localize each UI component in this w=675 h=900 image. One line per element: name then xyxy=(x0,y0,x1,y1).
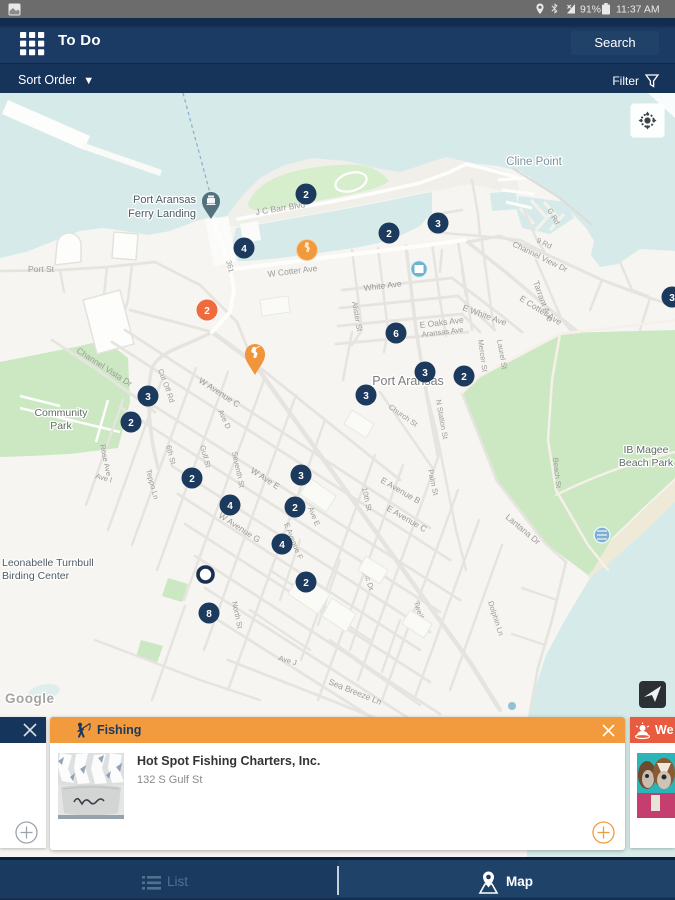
svg-text:IB Magee: IB Magee xyxy=(624,444,669,456)
svg-text:2: 2 xyxy=(292,503,298,514)
svg-text:3: 3 xyxy=(669,293,675,304)
svg-text:3: 3 xyxy=(422,368,428,379)
svg-text:6: 6 xyxy=(393,329,399,340)
svg-text:Port Aransas: Port Aransas xyxy=(133,194,196,206)
svg-text:Park: Park xyxy=(50,420,72,432)
svg-text:2: 2 xyxy=(386,229,392,240)
svg-text:Cline Point: Cline Point xyxy=(506,156,562,168)
svg-text:Ferry Landing: Ferry Landing xyxy=(128,208,196,220)
svg-text:3: 3 xyxy=(363,391,369,402)
svg-text:2: 2 xyxy=(461,372,467,383)
svg-text:4: 4 xyxy=(241,244,247,255)
svg-text:2: 2 xyxy=(189,474,195,485)
svg-text:2: 2 xyxy=(128,418,134,429)
svg-text:2: 2 xyxy=(303,190,309,201)
svg-text:3: 3 xyxy=(298,471,304,482)
svg-text:3: 3 xyxy=(145,392,151,403)
svg-text:Birding Center: Birding Center xyxy=(2,570,70,582)
svg-text:4: 4 xyxy=(279,540,285,551)
svg-text:91%: 91% xyxy=(580,4,601,16)
svg-text:11:37 AM: 11:37 AM xyxy=(616,4,660,16)
svg-text:3: 3 xyxy=(435,219,441,230)
svg-text:4: 4 xyxy=(227,501,233,512)
svg-text:Community: Community xyxy=(34,407,88,419)
svg-text:Google: Google xyxy=(5,691,55,706)
svg-text:Leonabelle Turnbull: Leonabelle Turnbull xyxy=(2,557,94,569)
svg-text:Port St: Port St xyxy=(28,264,55,274)
svg-text:2: 2 xyxy=(303,578,309,589)
svg-text:8: 8 xyxy=(206,609,212,620)
svg-text:Beach Park: Beach Park xyxy=(619,457,674,469)
svg-text:2: 2 xyxy=(204,306,210,317)
